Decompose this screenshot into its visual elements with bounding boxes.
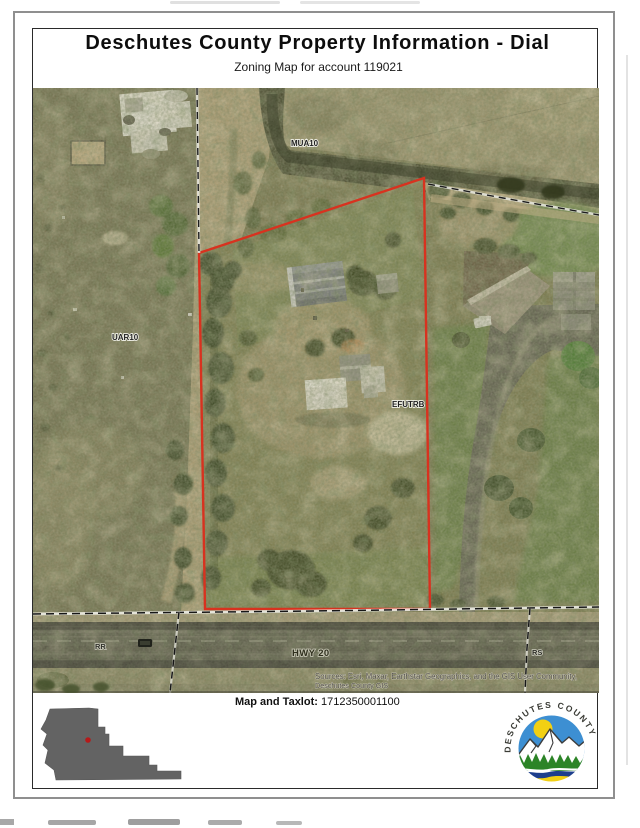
svg-text:Deschutes County GIS: Deschutes County GIS [315, 681, 388, 690]
svg-text:RR: RR [95, 642, 106, 651]
svg-text:Sources: Esri, Maxar, Earthsta: Sources: Esri, Maxar, Earthstar Geograph… [315, 672, 577, 681]
svg-text:UAR10: UAR10 [112, 333, 139, 342]
svg-text:HWY 20: HWY 20 [292, 648, 330, 659]
svg-text:RS: RS [532, 648, 542, 657]
svg-text:MUA10: MUA10 [291, 139, 319, 148]
svg-text:EFUTRB: EFUTRB [392, 400, 425, 409]
